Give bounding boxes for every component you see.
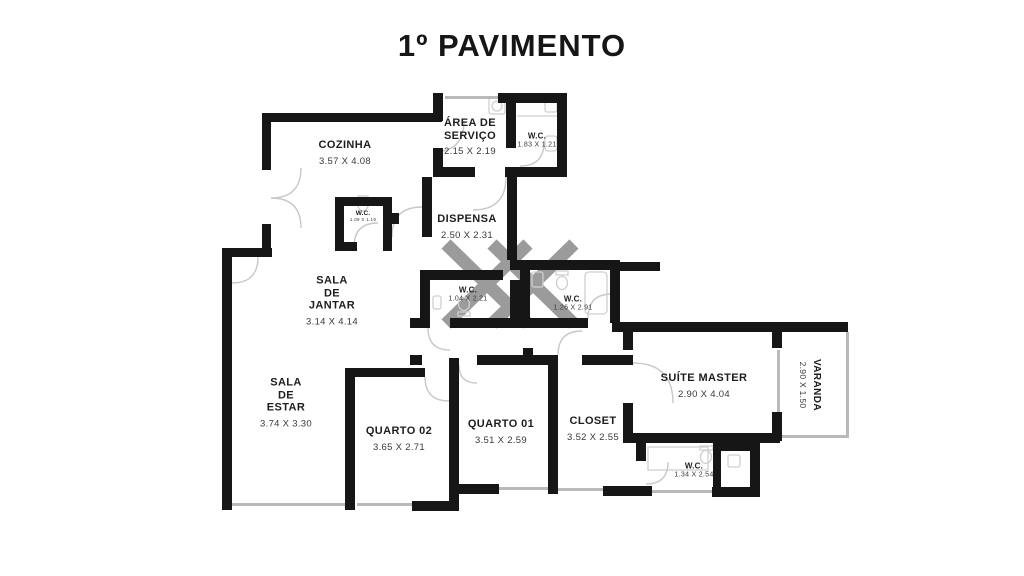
room-name: W.C. (350, 210, 376, 217)
wall (450, 318, 588, 328)
room-dims: 3.14 X 4.14 (306, 316, 358, 327)
room-label-closet: CLOSET 3.52 X 2.55 (567, 415, 619, 443)
toilet-icon (557, 277, 568, 290)
room-dims: 2.90 X 4.04 (661, 389, 748, 400)
room-label-wc-social: W.C. 1.04 X 2.21 (448, 285, 487, 302)
room-name: VARANDA (810, 359, 822, 411)
door-arc (271, 168, 301, 198)
window-line (777, 350, 780, 412)
door-arc (646, 462, 668, 484)
room-dims: 3.51 X 2.59 (468, 435, 534, 446)
wall (433, 167, 475, 177)
window-line (652, 490, 712, 493)
room-label-dispensa: DISPENSA 2.50 X 2.31 (437, 213, 496, 241)
window-line (445, 96, 498, 99)
wall (433, 93, 443, 121)
toilet-tank-icon (700, 446, 713, 450)
door-arc (425, 377, 449, 401)
room-label-suite-master: SUÍTE MASTER 2.90 X 4.04 (661, 372, 748, 400)
room-name: CLOSET (567, 415, 619, 428)
room-dims: 2.90 X 1.50 (798, 359, 808, 411)
wall (712, 487, 760, 497)
wall (410, 355, 422, 365)
room-name: ÁREA DE SERVIÇO (444, 117, 496, 142)
wall (582, 355, 633, 365)
room-dims: 1.26 X 2.91 (553, 305, 592, 312)
door-arc (428, 328, 450, 350)
wall (520, 270, 530, 318)
window-line (499, 487, 548, 490)
room-dims: 2.50 X 2.31 (437, 230, 496, 241)
room-label-quarto-02: QUARTO 02 3.65 X 2.71 (366, 425, 432, 453)
wall (222, 248, 232, 510)
room-name: SUÍTE MASTER (661, 372, 748, 385)
wall (383, 213, 399, 224)
balcony-edge-line (782, 435, 849, 438)
wall (507, 177, 517, 260)
door-arc (271, 198, 301, 228)
sink-icon (433, 296, 441, 309)
balcony-edge-line (846, 332, 849, 438)
room-label-wc-suite: W.C. 1.26 X 2.91 (553, 294, 592, 311)
wall (335, 242, 357, 251)
wall (449, 484, 459, 511)
room-label-quarto-01: QUARTO 01 3.51 X 2.59 (468, 418, 534, 446)
wall (772, 412, 782, 441)
wall (422, 177, 432, 237)
room-dims: 1.83 X 1.21 (517, 142, 556, 149)
room-label-cozinha: COZINHA 3.57 X 4.08 (319, 139, 372, 167)
wall (262, 113, 442, 122)
wall (410, 318, 428, 328)
room-name: W.C. (674, 461, 713, 470)
room-name: DISPENSA (437, 213, 496, 226)
floor-plan-drawing (0, 0, 1024, 576)
toilet-tank-icon (556, 271, 568, 275)
room-dims: 1.34 X 2.54 (674, 472, 713, 479)
wall (505, 167, 567, 177)
room-dims: 3.74 X 3.30 (260, 418, 312, 429)
room-label-varanda: VARANDA 2.90 X 1.50 (798, 359, 822, 411)
wall (510, 280, 520, 318)
room-dims: 1.04 X 2.21 (448, 296, 487, 303)
room-label-wc-cozinha: W.C. 1.09 X 1.19 (350, 210, 376, 222)
wall (636, 443, 646, 461)
room-name: SALA DE ESTAR (260, 377, 312, 415)
shower-icon (728, 455, 740, 467)
wall (548, 360, 558, 494)
door-arc (232, 257, 258, 283)
window-line (357, 503, 412, 506)
room-label-sala-de-jantar: SALA DE JANTAR 3.14 X 4.14 (306, 275, 358, 328)
wall (345, 368, 425, 377)
wall (420, 270, 503, 280)
room-name: SALA DE JANTAR (306, 275, 358, 313)
wall (557, 93, 567, 170)
door-arc (558, 331, 582, 355)
room-name: W.C. (448, 285, 487, 294)
room-dims: 3.65 X 2.71 (366, 442, 432, 453)
room-label-wc-master: W.C. 1.34 X 2.54 (674, 461, 713, 478)
wall (477, 355, 558, 365)
room-label-sala-de-estar: SALA DE ESTAR 3.74 X 3.30 (260, 377, 312, 430)
wall (510, 260, 620, 270)
room-name: QUARTO 02 (366, 425, 432, 438)
wall (623, 433, 780, 443)
wall (620, 262, 660, 271)
room-name: W.C. (517, 131, 556, 140)
door-arc (473, 177, 506, 210)
room-dims: 2.15 X 2.19 (444, 146, 496, 157)
wall (772, 332, 782, 348)
window-line (232, 503, 345, 506)
room-name: COZINHA (319, 139, 372, 152)
room-name: QUARTO 01 (468, 418, 534, 431)
room-dims: 3.57 X 4.08 (319, 156, 372, 167)
room-name: W.C. (553, 294, 592, 303)
wall (262, 224, 271, 257)
wall (603, 486, 652, 496)
room-label-area-servico: ÁREA DE SERVIÇO 2.15 X 2.19 (444, 117, 496, 157)
room-dims: 3.52 X 2.55 (567, 432, 619, 443)
wall (610, 270, 620, 323)
wall (459, 484, 499, 494)
room-dims: 1.09 X 1.19 (350, 217, 376, 222)
wall (449, 358, 459, 505)
door-arc (459, 365, 477, 383)
room-label-wc-servico: W.C. 1.83 X 1.21 (517, 131, 556, 148)
window-line (558, 488, 603, 491)
floor-plan-page: 1º PAVIMENTO (0, 0, 1024, 576)
wall (345, 368, 355, 510)
wall (612, 322, 848, 332)
door-arc (354, 223, 378, 247)
wall (713, 449, 721, 493)
wall (506, 93, 516, 148)
